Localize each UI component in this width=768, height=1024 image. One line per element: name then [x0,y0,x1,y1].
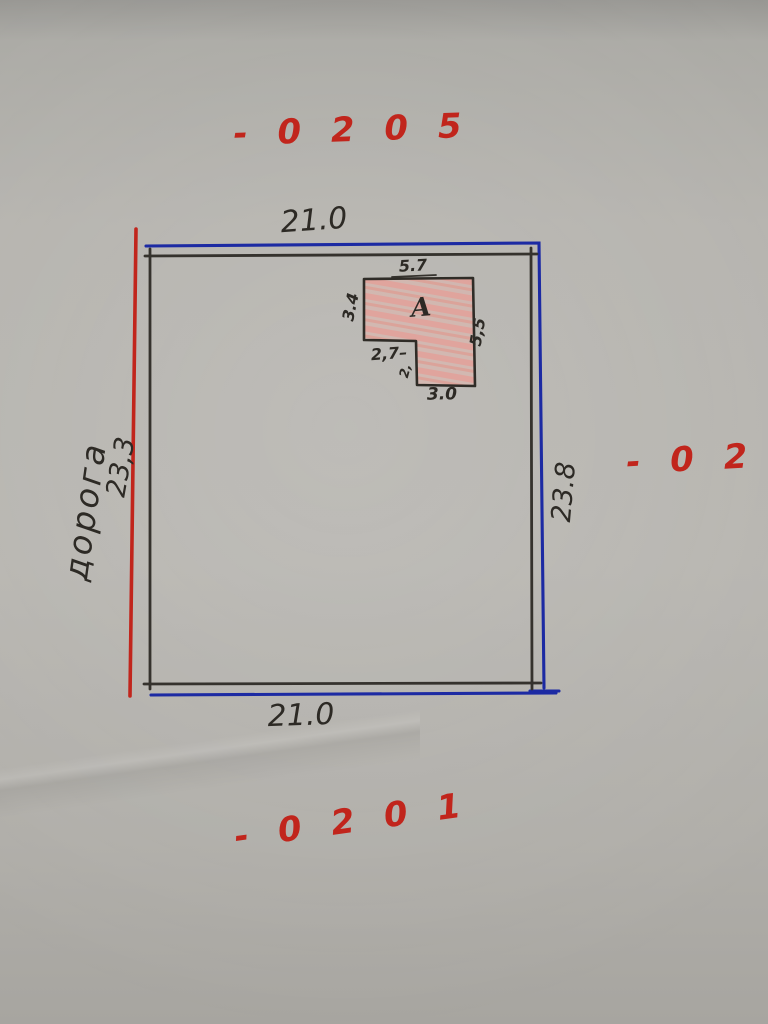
building-top-width-label: 5.7 [398,257,427,274]
plot-top-width-label: 21.0 [280,204,349,239]
building-bottom-width-label: 3.0 [427,386,457,404]
survey-code-top: - 0 2 0 5 [233,109,471,151]
plot-bottom-width-label: 21.0 [267,700,335,732]
plot-outline-blue-bottom [151,693,556,695]
plot-sketch-drawing [0,0,768,1024]
building-notch-width-label: 2,7– [370,345,407,363]
building-notch-height-label: 2, [398,363,414,380]
survey-code-right: - 0 2 0 [625,436,768,480]
plot-right-depth-label: 23.8 [548,461,580,523]
sketch-photo: - 0 2 0 5 - 0 2 0 - 0 2 0 1 21.0 21.0 23… [0,0,768,1024]
building-letter-label: A [410,294,432,322]
building-right-height-label: 5,5 [468,317,489,348]
